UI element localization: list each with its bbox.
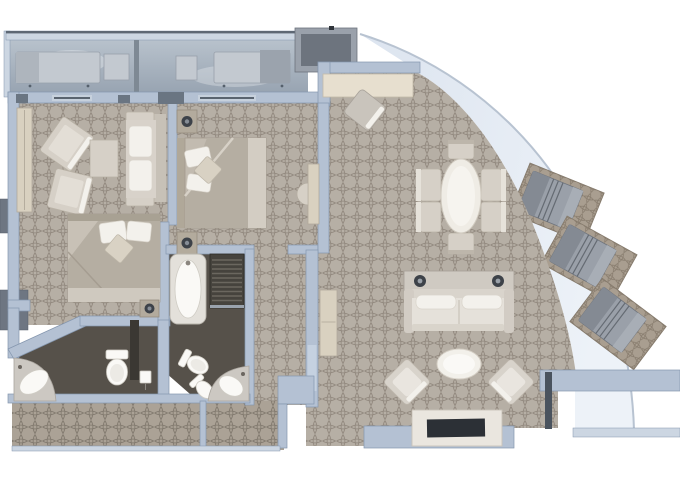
balcony-door-track (200, 97, 254, 99)
dining-chair (448, 233, 474, 254)
sun-lounger (214, 50, 290, 87)
floor-plan-svg (0, 0, 680, 486)
shower (210, 254, 244, 308)
bathtub (170, 254, 206, 324)
nightstand-with-lamp (177, 110, 197, 133)
entry-step-wall (278, 376, 314, 404)
balcony-end-wall-bottom (573, 428, 680, 437)
floor-plan-image (0, 0, 680, 486)
bathroom-divider-wall (158, 320, 169, 403)
toilet (106, 350, 128, 385)
bath-partition (130, 320, 139, 380)
guest-bath-top-wall (80, 316, 170, 326)
lounger-backrest (260, 50, 290, 83)
shower-glass (210, 305, 244, 308)
double-bed (68, 214, 160, 302)
oval-dining-table (441, 159, 481, 233)
sofa-arm (504, 289, 514, 333)
bed-foot-band (248, 138, 266, 228)
aft-wall (540, 370, 680, 391)
coffee-table-top (443, 354, 475, 374)
loveseat-cushion (129, 126, 152, 157)
side-table (104, 54, 129, 80)
table-top (447, 166, 475, 226)
lounger-foot (29, 85, 32, 88)
double-bed (177, 138, 266, 228)
aft-door-leaf (545, 372, 552, 429)
loveseat-cushion (129, 160, 152, 191)
bathtub-basin (175, 260, 201, 318)
living-dining-floor (306, 70, 576, 446)
lounger-foot (281, 85, 284, 88)
vanity (308, 164, 319, 224)
loveseat (126, 112, 166, 206)
side-table (176, 56, 197, 80)
entry-right-wall (278, 404, 287, 448)
dining-chair (448, 140, 474, 159)
balcony-rail-edge (6, 31, 310, 33)
bed-pillow (126, 221, 152, 242)
sofa (404, 289, 514, 333)
living-top-wall (318, 62, 420, 73)
door-frame (118, 95, 130, 103)
door-frame (16, 94, 28, 103)
dining-chair (416, 202, 441, 232)
lounger-foot (87, 85, 90, 88)
dining-chair (416, 169, 441, 201)
sink-tap (241, 372, 245, 376)
toilet-tank (106, 350, 128, 359)
lounger-backrest (16, 52, 39, 83)
lamp-top (496, 279, 501, 284)
sofa-pillow (416, 295, 456, 309)
coffee-table (437, 349, 481, 379)
lamp-top (418, 279, 423, 284)
sofa-pillow (462, 295, 502, 309)
structure-detail (329, 26, 334, 30)
tv (427, 418, 485, 437)
lamp-top (185, 119, 189, 123)
front-balcony (4, 31, 310, 97)
lamp-top (148, 307, 152, 311)
door-frame (158, 92, 184, 104)
dining-chair (481, 169, 506, 201)
sink-tap (18, 365, 22, 369)
nightstand-with-lamp (140, 300, 159, 317)
toilet-seat (110, 364, 124, 382)
side-table (90, 140, 118, 177)
entry-divider-wall (200, 401, 206, 450)
master-living-wall (318, 103, 329, 253)
entry-bottom-wall (12, 446, 280, 451)
bathtub-tap (186, 261, 191, 266)
lamp-top (185, 241, 189, 245)
bedroom-divider-wall (168, 103, 177, 225)
tv-cabinet (412, 410, 502, 446)
nightstand-with-lamp (177, 232, 197, 254)
hall-cabinet (320, 290, 337, 356)
wardrobe (17, 108, 32, 212)
sun-lounger (16, 52, 100, 87)
bed-headboard (177, 138, 185, 228)
lounger-foot (223, 85, 226, 88)
sofa-front-edge (412, 324, 504, 331)
balcony-divider (134, 40, 139, 96)
entry-hall-floor (12, 401, 284, 450)
balcony-end-wall (4, 31, 10, 97)
bed-headboard (68, 214, 160, 221)
structure-inner (301, 34, 351, 66)
dining-chair (481, 202, 506, 232)
console-with-two-lamps (404, 271, 514, 291)
balcony-door-track (54, 97, 90, 99)
